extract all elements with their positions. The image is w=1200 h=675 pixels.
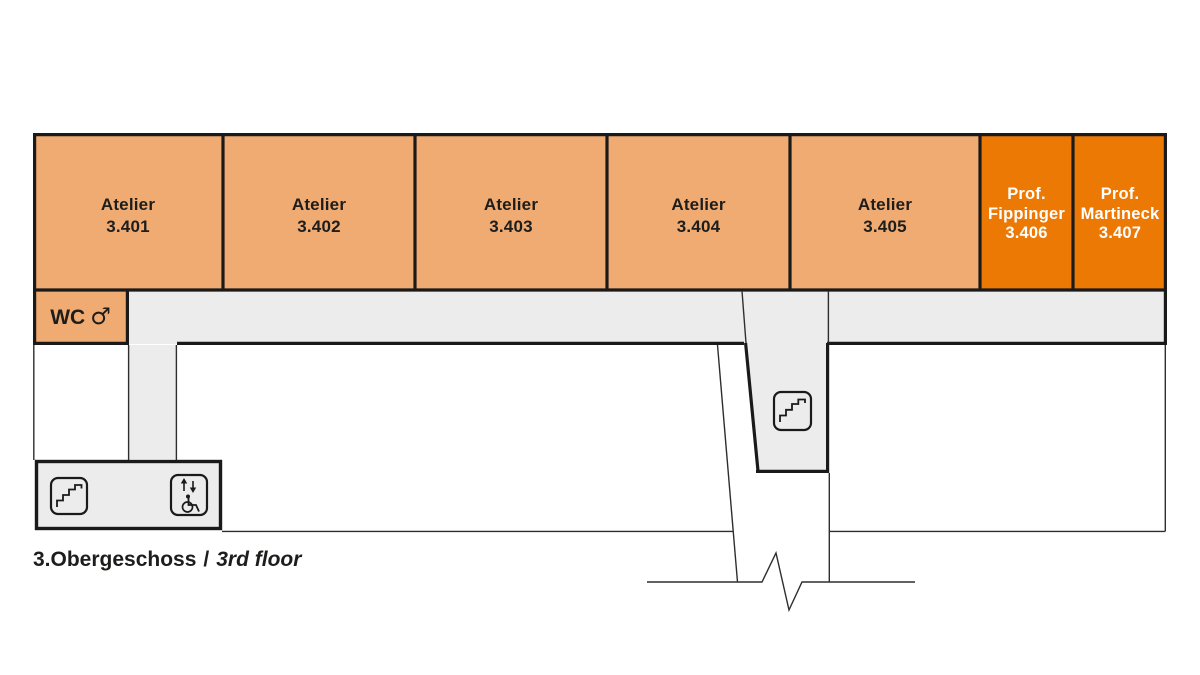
room-name: Atelier	[607, 194, 790, 216]
room-surname: Martineck	[1073, 205, 1167, 225]
room-number: 3.406	[980, 224, 1073, 244]
room-label-3405: Atelier 3.405	[790, 194, 980, 238]
room-label-3401: Atelier 3.401	[33, 194, 223, 238]
room-number: 3.405	[790, 216, 980, 238]
room-label-3402: Atelier 3.402	[223, 194, 415, 238]
room-surname: Fippinger	[980, 205, 1073, 225]
room-number: 3.401	[33, 216, 223, 238]
room-number: 3.404	[607, 216, 790, 238]
caption-de: 3.Obergeschoss	[33, 548, 196, 571]
wc-label: WC ♂	[33, 295, 128, 341]
room-name: Atelier	[33, 194, 223, 216]
floor-plan-drawing	[0, 0, 1200, 675]
wc-text: WC	[50, 306, 85, 330]
floor-caption: 3.Obergeschoss/3rd floor	[33, 548, 301, 572]
room-number: 3.407	[1073, 224, 1167, 244]
room-number: 3.403	[415, 216, 607, 238]
room-label-3404: Atelier 3.404	[607, 194, 790, 238]
room-number: 3.402	[223, 216, 415, 238]
room-name: Atelier	[415, 194, 607, 216]
room-label-3406: Prof. Fippinger 3.406	[980, 185, 1073, 244]
room-label-3403: Atelier 3.403	[415, 194, 607, 238]
caption-en: 3rd floor	[216, 548, 301, 571]
room-title: Prof.	[980, 185, 1073, 205]
break-line	[647, 553, 915, 610]
corridor	[34, 290, 1166, 344]
caption-separator: /	[203, 548, 209, 571]
floor-plan: Atelier 3.401 Atelier 3.402 Atelier 3.40…	[0, 0, 1200, 675]
room-label-3407: Prof. Martineck 3.407	[1073, 185, 1167, 244]
room-name: Atelier	[790, 194, 980, 216]
male-symbol-icon: ♂	[90, 306, 111, 329]
room-title: Prof.	[1073, 185, 1167, 205]
left-stair-shaft	[128, 345, 177, 459]
room-name: Atelier	[223, 194, 415, 216]
